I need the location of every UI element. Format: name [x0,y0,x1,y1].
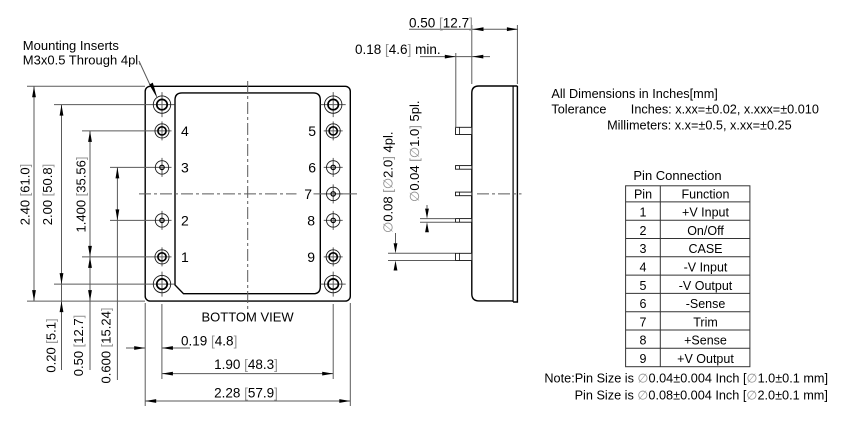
svg-text:0.19 [4.8]: 0.19 [4.8] [181,334,237,349]
svg-text:9: 9 [307,249,315,265]
svg-text:+V Input: +V Input [682,206,729,220]
svg-text:Note:Pin Size is ∅0.04±0.004 I: Note:Pin Size is ∅0.04±0.004 Inch [∅1.0±… [544,372,828,386]
svg-text:7: 7 [304,186,312,202]
svg-text:1.400 [35.56]: 1.400 [35.56] [73,157,88,233]
svg-text:2.00 [50.8]: 2.00 [50.8] [40,164,55,225]
svg-text:6: 6 [640,297,647,311]
svg-text:+V Output: +V Output [677,352,734,366]
svg-text:0.50 [12.7]: 0.50 [12.7] [71,315,86,376]
svg-text:1: 1 [640,206,647,220]
svg-text:3: 3 [640,242,647,256]
svg-text:Pin: Pin [634,188,652,202]
svg-text:2.28 [57.9]: 2.28 [57.9] [214,386,278,401]
svg-text:CASE: CASE [688,242,722,256]
svg-text:1.90 [48.3]: 1.90 [48.3] [214,357,278,372]
svg-text:0.600 [15.24]: 0.600 [15.24] [99,308,114,384]
svg-text:5: 5 [308,123,316,139]
svg-text:2.40 [61.0]: 2.40 [61.0] [17,164,32,225]
svg-text:4: 4 [640,261,647,275]
svg-text:BOTTOM VIEW: BOTTOM VIEW [201,310,294,325]
svg-text:Mounting Inserts: Mounting Inserts [23,38,120,53]
svg-text:Tolerance: Tolerance [551,102,606,116]
svg-text:0.50 [12.7]: 0.50 [12.7] [409,16,473,31]
svg-text:4: 4 [181,123,189,139]
svg-text:8: 8 [640,334,647,348]
svg-text:-V Output: -V Output [679,279,733,293]
svg-text:+Sense: +Sense [684,334,727,348]
svg-text:1: 1 [181,249,189,265]
svg-text:Millimeters: x.x=±0.5, x.xx=±0: Millimeters: x.x=±0.5, x.xx=±0.25 [607,118,792,132]
svg-text:0.20 [5.1]: 0.20 [5.1] [43,318,58,372]
svg-text:5: 5 [640,279,647,293]
svg-text:0.18 [4.6] min.: 0.18 [4.6] min. [355,42,441,57]
svg-text:3: 3 [181,159,189,175]
svg-text:Pin Connection: Pin Connection [633,168,721,183]
svg-text:9: 9 [640,352,647,366]
svg-text:M3x0.5 Through 4pl.: M3x0.5 Through 4pl. [23,53,142,68]
svg-text:Inches: x.xx=±0.02, x.xxx=±0.0: Inches: x.xx=±0.02, x.xxx=±0.010 [631,102,819,116]
svg-text:All Dimensions in Inches[mm]: All Dimensions in Inches[mm] [551,87,717,101]
svg-text:2: 2 [640,224,647,238]
svg-text:On/Off: On/Off [687,224,724,238]
svg-text:8: 8 [307,212,315,228]
svg-text:Pin Size is ∅0.08±0.004 Inch [: Pin Size is ∅0.08±0.004 Inch [∅2.0±0.1 m… [575,389,828,403]
svg-text:7: 7 [640,315,647,329]
svg-text:-Sense: -Sense [686,297,726,311]
svg-text:2: 2 [181,212,189,228]
svg-text:Function: Function [682,188,730,202]
svg-text:∅0.08 [∅2.0] 4pl.: ∅0.08 [∅2.0] 4pl. [381,132,396,233]
svg-text:6: 6 [308,159,316,175]
svg-text:Trim: Trim [693,315,718,329]
svg-text:-V Input: -V Input [684,261,728,275]
svg-text:∅0.04 [∅1.0] 5pl.: ∅0.04 [∅1.0] 5pl. [407,101,422,202]
